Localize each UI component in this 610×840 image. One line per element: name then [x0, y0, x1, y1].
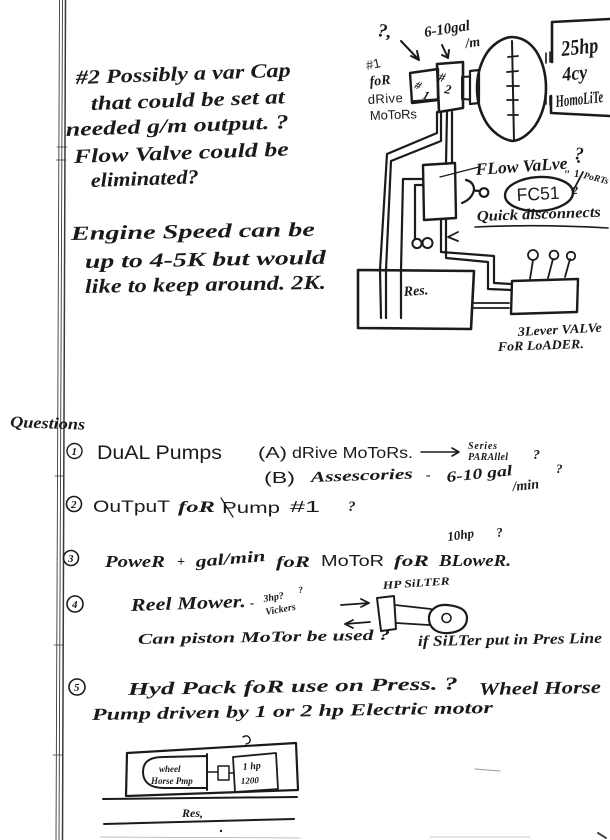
- svg-text:″: ″: [564, 167, 571, 181]
- svg-text:1: 1: [72, 446, 78, 458]
- svg-text:3: 3: [67, 553, 74, 565]
- svg-text:OuTpuT: OuTpuT: [93, 497, 170, 516]
- svg-text:up to 4-5K but would: up to 4-5K but would: [85, 247, 328, 273]
- svg-text:?: ?: [533, 448, 540, 463]
- svg-text:Wheel Horse: Wheel Horse: [479, 677, 601, 699]
- svg-text:foR: foR: [178, 499, 216, 516]
- svg-text:+: +: [177, 555, 185, 570]
- svg-text:foR: foR: [394, 553, 429, 570]
- svg-text:5: 5: [74, 682, 80, 694]
- svg-text:-: -: [426, 468, 431, 483]
- svg-text:FoR LoADER.: FoR LoADER.: [497, 336, 585, 354]
- svg-text:-: -: [250, 595, 254, 610]
- svg-text:2: 2: [70, 499, 77, 511]
- svg-text:?: ?: [556, 461, 563, 476]
- svg-text:#1: #1: [290, 499, 320, 516]
- svg-text:Questions: Questions: [10, 414, 86, 434]
- svg-text:PoweR: PoweR: [104, 552, 165, 571]
- svg-text:dRive: dRive: [367, 90, 403, 107]
- svg-text:Horse Pmp: Horse Pmp: [150, 776, 193, 786]
- svg-text:Series: Series: [468, 441, 497, 452]
- svg-text:FC51: FC51: [516, 183, 560, 205]
- svg-text:PARAllel: PARAllel: [468, 452, 508, 463]
- svg-text:/m: /m: [463, 35, 481, 52]
- svg-text:2: 2: [571, 183, 578, 197]
- svg-text:1: 1: [574, 168, 580, 180]
- svg-text:Res.: Res.: [402, 283, 428, 300]
- svg-text:like to keep around. 2K.: like to keep around. 2K.: [85, 272, 326, 298]
- svg-text:Reel Mower.: Reel Mower.: [129, 591, 246, 615]
- svg-text:?: ?: [348, 499, 356, 515]
- svg-text:/min: /min: [511, 477, 540, 495]
- svg-text:1 hp: 1 hp: [242, 760, 261, 773]
- svg-text:eliminated?: eliminated?: [90, 166, 199, 192]
- svg-text:foR: foR: [276, 554, 310, 571]
- svg-text:Engine Speed can be: Engine Speed can be: [69, 219, 315, 245]
- svg-text:wheel: wheel: [159, 764, 181, 774]
- svg-text:#1: #1: [365, 55, 382, 73]
- svg-text:?,: ?,: [376, 20, 393, 43]
- svg-text:4: 4: [71, 599, 78, 611]
- svg-text:(A): (A): [258, 445, 287, 462]
- svg-text:dRive MoToRs.: dRive MoToRs.: [292, 445, 413, 462]
- svg-text:1200: 1200: [241, 775, 260, 786]
- svg-text:MoToRs: MoToRs: [370, 106, 418, 123]
- svg-text:BLoweR.: BLoweR.: [438, 551, 511, 570]
- svg-text:Res,: Res,: [181, 806, 203, 820]
- svg-text:DuAL Pumps: DuAL Pumps: [97, 443, 222, 464]
- svg-text:foR: foR: [369, 73, 391, 90]
- svg-text:4cy: 4cy: [560, 61, 588, 86]
- svg-text:if SiLTer put in Pres Line: if SiLTer put in Pres Line: [418, 631, 603, 650]
- svg-text:(B): (B): [264, 470, 295, 487]
- svg-text:25hp: 25hp: [559, 32, 599, 61]
- svg-text:MoToR: MoToR: [321, 553, 384, 570]
